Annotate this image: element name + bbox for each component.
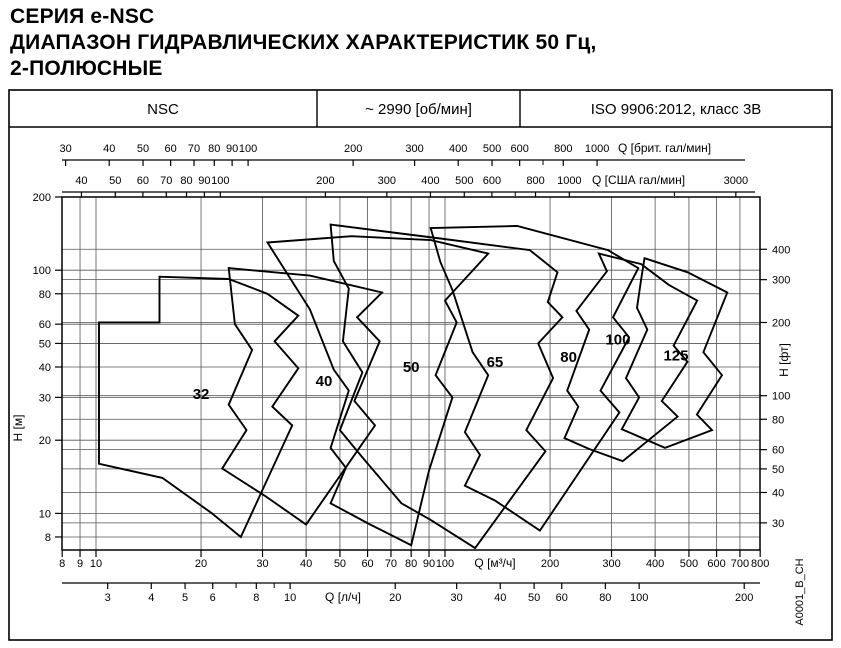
svg-text:60: 60	[556, 592, 568, 604]
svg-text:8: 8	[45, 532, 51, 544]
svg-text:200: 200	[772, 317, 790, 329]
hydraulic-range-chart: 200100806050403020108H [м]40030020010080…	[0, 0, 841, 648]
svg-text:80: 80	[599, 592, 611, 604]
svg-text:80: 80	[208, 143, 220, 155]
svg-text:100: 100	[239, 143, 257, 155]
page: СЕРИЯ e-NSC ДИАПАЗОН ГИДРАВЛИЧЕСКИХ ХАРА…	[0, 0, 841, 648]
svg-text:300: 300	[772, 275, 790, 287]
svg-text:40: 40	[75, 175, 87, 187]
svg-text:500: 500	[455, 175, 473, 187]
svg-text:H [фт]: H [фт]	[777, 343, 791, 377]
svg-text:200: 200	[33, 192, 51, 204]
svg-text:40: 40	[494, 592, 506, 604]
side-note: A0001_B_CH	[794, 558, 806, 625]
zone-label-50: 50	[403, 359, 420, 376]
svg-text:200: 200	[541, 558, 559, 570]
zone-label-80: 80	[560, 349, 577, 366]
zone-40	[222, 268, 382, 524]
svg-text:60: 60	[772, 445, 784, 457]
svg-text:400: 400	[421, 175, 439, 187]
svg-text:50: 50	[528, 592, 540, 604]
svg-text:600: 600	[707, 558, 725, 570]
svg-text:50: 50	[334, 558, 346, 570]
svg-text:200: 200	[735, 592, 753, 604]
svg-text:300: 300	[602, 558, 620, 570]
zone-50	[268, 236, 489, 545]
svg-text:800: 800	[751, 558, 769, 570]
svg-text:60: 60	[165, 143, 177, 155]
svg-text:400: 400	[772, 244, 790, 256]
svg-text:200: 200	[344, 143, 362, 155]
svg-text:70: 70	[160, 175, 172, 187]
svg-text:90: 90	[423, 558, 435, 570]
svg-text:Q [л/ч]: Q [л/ч]	[325, 590, 361, 604]
axis-h-m: 200100806050403020108H [м]	[11, 192, 62, 544]
doc-code: A0001_B_CH	[794, 558, 806, 625]
svg-text:10: 10	[90, 558, 102, 570]
svg-text:60: 60	[361, 558, 373, 570]
svg-text:80: 80	[772, 414, 784, 426]
axis-q-ls: 3456810203040506080100200Q [л/ч]	[62, 583, 760, 604]
svg-text:100: 100	[630, 592, 648, 604]
svg-text:100: 100	[33, 265, 51, 277]
svg-text:30: 30	[39, 392, 51, 404]
svg-text:100: 100	[211, 175, 229, 187]
axis-q-us-gpm: 4050607080901002003004005006008001000300…	[62, 173, 755, 197]
zone-65	[331, 225, 563, 548]
svg-text:3000: 3000	[724, 175, 748, 187]
svg-text:40: 40	[300, 558, 312, 570]
zone-label-40: 40	[316, 373, 333, 390]
svg-text:5: 5	[182, 592, 188, 604]
svg-text:300: 300	[405, 143, 423, 155]
svg-text:60: 60	[39, 319, 51, 331]
svg-text:90: 90	[198, 175, 210, 187]
svg-text:500: 500	[680, 558, 698, 570]
svg-text:100: 100	[436, 558, 454, 570]
axis-h-ft: 4003002001008060504030H [фт]	[760, 244, 791, 530]
svg-text:50: 50	[137, 143, 149, 155]
svg-text:400: 400	[646, 558, 664, 570]
svg-text:1000: 1000	[585, 143, 609, 155]
svg-text:30: 30	[451, 592, 463, 604]
svg-text:8: 8	[59, 558, 65, 570]
svg-text:70: 70	[188, 143, 200, 155]
svg-text:9: 9	[77, 558, 83, 570]
svg-text:1000: 1000	[557, 175, 581, 187]
svg-text:40: 40	[39, 362, 51, 374]
svg-text:200: 200	[316, 175, 334, 187]
svg-text:Q [м³/ч]: Q [м³/ч]	[474, 556, 515, 570]
svg-text:10: 10	[284, 592, 296, 604]
svg-text:Q [США гал/мин]: Q [США гал/мин]	[592, 173, 685, 187]
svg-text:800: 800	[554, 143, 572, 155]
svg-text:400: 400	[449, 143, 467, 155]
svg-text:500: 500	[483, 143, 501, 155]
svg-text:600: 600	[483, 175, 501, 187]
svg-text:50: 50	[109, 175, 121, 187]
svg-text:20: 20	[389, 592, 401, 604]
zone-label-32: 32	[193, 386, 210, 403]
svg-text:3: 3	[105, 592, 111, 604]
svg-text:20: 20	[195, 558, 207, 570]
svg-text:80: 80	[39, 289, 51, 301]
svg-text:8: 8	[253, 592, 259, 604]
svg-text:80: 80	[180, 175, 192, 187]
svg-text:30: 30	[772, 518, 784, 530]
svg-text:30: 30	[256, 558, 268, 570]
svg-text:10: 10	[39, 508, 51, 520]
svg-text:50: 50	[772, 464, 784, 476]
svg-text:90: 90	[226, 143, 238, 155]
axis-q-imp-gpm: 304050607080901002003004005006008001000Q…	[59, 141, 745, 166]
svg-text:600: 600	[510, 143, 528, 155]
svg-text:800: 800	[526, 175, 544, 187]
svg-text:6: 6	[210, 592, 216, 604]
zone-label-65: 65	[487, 354, 504, 371]
axis-q-m3h: 8910203040506070809010020030040050060070…	[59, 550, 769, 570]
svg-text:50: 50	[39, 338, 51, 350]
svg-text:H [м]: H [м]	[11, 415, 25, 442]
svg-text:40: 40	[103, 143, 115, 155]
svg-text:20: 20	[39, 435, 51, 447]
svg-text:700: 700	[731, 558, 749, 570]
svg-text:100: 100	[772, 391, 790, 403]
svg-text:Q [брит. гал/мин]: Q [брит. гал/мин]	[618, 141, 711, 155]
svg-text:40: 40	[772, 487, 784, 499]
svg-text:30: 30	[59, 143, 71, 155]
svg-text:60: 60	[137, 175, 149, 187]
svg-text:4: 4	[148, 592, 154, 604]
range-zones: 3240506580100125	[99, 225, 727, 548]
svg-text:80: 80	[405, 558, 417, 570]
svg-text:300: 300	[378, 175, 396, 187]
zone-label-100: 100	[605, 331, 630, 348]
zone-label-125: 125	[663, 348, 688, 365]
svg-text:70: 70	[385, 558, 397, 570]
